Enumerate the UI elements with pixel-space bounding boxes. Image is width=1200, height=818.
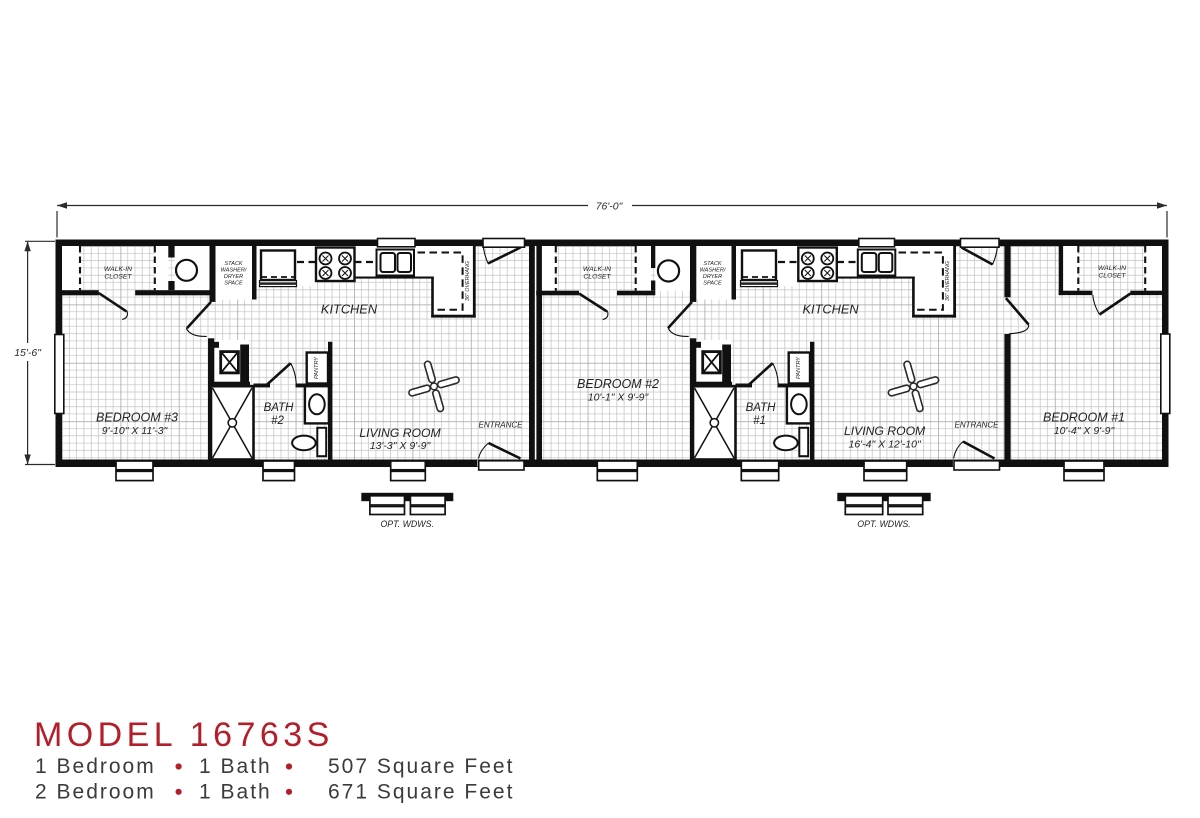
svg-text:#2: #2 (271, 415, 284, 427)
svg-text:WALK-IN: WALK-IN (104, 266, 132, 273)
svg-text:15'-6": 15'-6" (14, 347, 42, 359)
svg-text:10'-4" X 9'-9": 10'-4" X 9'-9" (1054, 425, 1116, 437)
svg-text:PANTRY: PANTRY (796, 356, 802, 379)
svg-text:1 Bedroom: 1 Bedroom (35, 755, 156, 778)
svg-text:507 Square Feet: 507 Square Feet (328, 755, 514, 778)
svg-text:WALK-IN: WALK-IN (583, 266, 611, 273)
svg-text:WASHER/: WASHER/ (699, 268, 726, 274)
svg-text:10'-1" X 9'-9": 10'-1" X 9'-9" (588, 392, 650, 404)
svg-text:OPT. WDWS.: OPT. WDWS. (380, 519, 433, 529)
svg-text:9'-10" X 11'-3": 9'-10" X 11'-3" (102, 425, 169, 437)
svg-text:1 Bath: 1 Bath (199, 780, 272, 803)
svg-text:WALK-IN: WALK-IN (1098, 265, 1126, 272)
svg-text:BATH: BATH (746, 402, 777, 414)
svg-text:LIVING ROOM: LIVING ROOM (359, 426, 441, 440)
svg-text:KITCHEN: KITCHEN (803, 302, 860, 317)
svg-text:DRYER: DRYER (703, 274, 722, 280)
svg-text:WASHER/: WASHER/ (220, 268, 247, 274)
svg-text:SPACE: SPACE (703, 281, 722, 287)
svg-text:16'-4" X 12'-10": 16'-4" X 12'-10" (849, 439, 922, 451)
svg-text:BEDROOM #1: BEDROOM #1 (1043, 411, 1125, 425)
svg-text:OPT. WDWS.: OPT. WDWS. (857, 519, 910, 529)
svg-text:CLOSET: CLOSET (1098, 273, 1126, 280)
svg-text:STACK: STACK (224, 261, 243, 267)
svg-text:BATH: BATH (264, 402, 295, 414)
svg-text:PANTRY: PANTRY (314, 356, 320, 379)
svg-text:KITCHEN: KITCHEN (321, 302, 378, 317)
svg-text:BEDROOM #3: BEDROOM #3 (96, 411, 178, 425)
svg-text:ENTRANCE: ENTRANCE (954, 421, 999, 430)
svg-text:76'-0": 76'-0" (596, 200, 624, 212)
svg-text:36" OVERHANG: 36" OVERHANG (945, 261, 951, 301)
svg-text:ENTRANCE: ENTRANCE (478, 421, 523, 430)
svg-text:671 Square Feet: 671 Square Feet (328, 780, 514, 803)
svg-text:STACK: STACK (703, 261, 722, 267)
svg-text:LIVING ROOM: LIVING ROOM (844, 424, 926, 438)
svg-text:BEDROOM #2: BEDROOM #2 (577, 377, 659, 391)
svg-text:2 Bedroom: 2 Bedroom (35, 780, 156, 803)
svg-text:13'-3" X 9'-9": 13'-3" X 9'-9" (370, 440, 432, 452)
svg-text:36" OVERHANG: 36" OVERHANG (465, 261, 471, 301)
svg-text:MODEL 16763S: MODEL 16763S (34, 716, 334, 754)
svg-text:#1: #1 (753, 415, 766, 427)
svg-text:1 Bath: 1 Bath (199, 755, 272, 778)
svg-text:SPACE: SPACE (224, 281, 243, 287)
svg-text:CLOSET: CLOSET (104, 274, 132, 281)
svg-text:CLOSET: CLOSET (583, 274, 611, 281)
svg-text:DRYER: DRYER (224, 274, 243, 280)
